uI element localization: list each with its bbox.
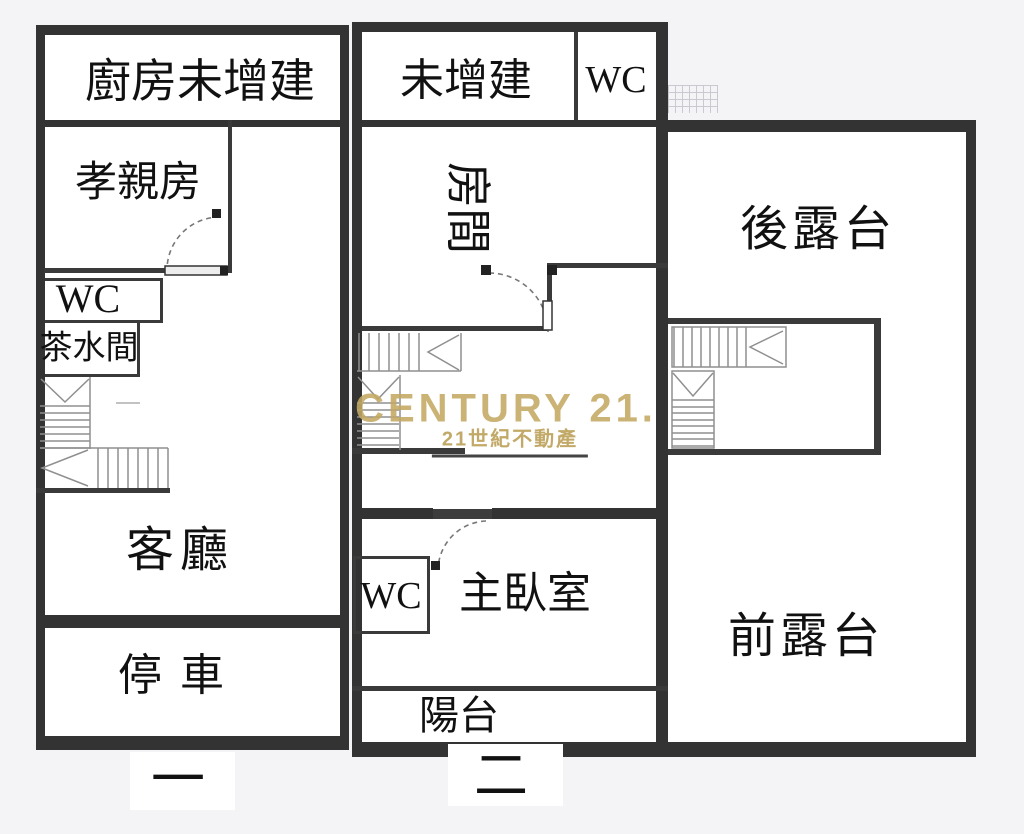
room-label-pantry: 茶水間: [40, 333, 139, 366]
room-label-unbuilt: 未增建: [400, 59, 532, 103]
century21-watermark-subtext: 21世紀不動產: [432, 423, 588, 458]
stair-arrow: [750, 331, 783, 364]
room-label-living-room: 客廳: [126, 527, 234, 575]
room-label-balcony: 陽台: [419, 696, 499, 736]
room-label-parents-room: 孝親房: [75, 162, 201, 204]
stair-treads: [357, 333, 461, 371]
door-post: [431, 561, 440, 570]
room-label-wc-upper: WC: [585, 61, 646, 99]
stair-treads: [672, 327, 786, 367]
door-post: [212, 209, 221, 218]
room-label-kitchen-unbuilt: 廚房未增建: [85, 59, 315, 105]
room-label-front-terrace: 前露台: [728, 613, 884, 661]
room-label-room: 房間: [444, 162, 490, 254]
door-post: [481, 265, 491, 275]
door-leaf: [165, 266, 227, 275]
room-label-rear-terrace: 後露台: [740, 206, 896, 254]
door-arc-master-bedroom: [438, 521, 486, 569]
door-arc-room: [489, 273, 548, 332]
door-post: [220, 266, 228, 275]
door-leaf: [433, 509, 492, 519]
stair-arrow: [428, 335, 459, 370]
floor1-number: 一: [151, 753, 205, 807]
stair-arrow: [42, 450, 88, 486]
stair-treads: [40, 448, 168, 488]
stair-treads: [40, 377, 90, 449]
door-arc-parents-room: [167, 217, 220, 270]
stair-arrow: [673, 373, 713, 396]
room-label-master-bedroom: 主臥室: [459, 572, 591, 616]
room-label-parking: 停車: [118, 654, 242, 698]
floorplan-canvas: 廚房未增建 孝親房 WC 茶水間 客廳 停車 未增建 WC 房間 WC 主臥室 …: [0, 0, 1024, 834]
floor2-number: 二: [474, 749, 528, 803]
door-post: [547, 265, 557, 275]
stair-arrow: [41, 379, 89, 402]
room-label-wc-floor1: WC: [56, 279, 120, 319]
room-label-wc-floor2: WC: [360, 577, 421, 615]
stair-treads: [672, 371, 714, 448]
door-leaf: [543, 301, 552, 330]
